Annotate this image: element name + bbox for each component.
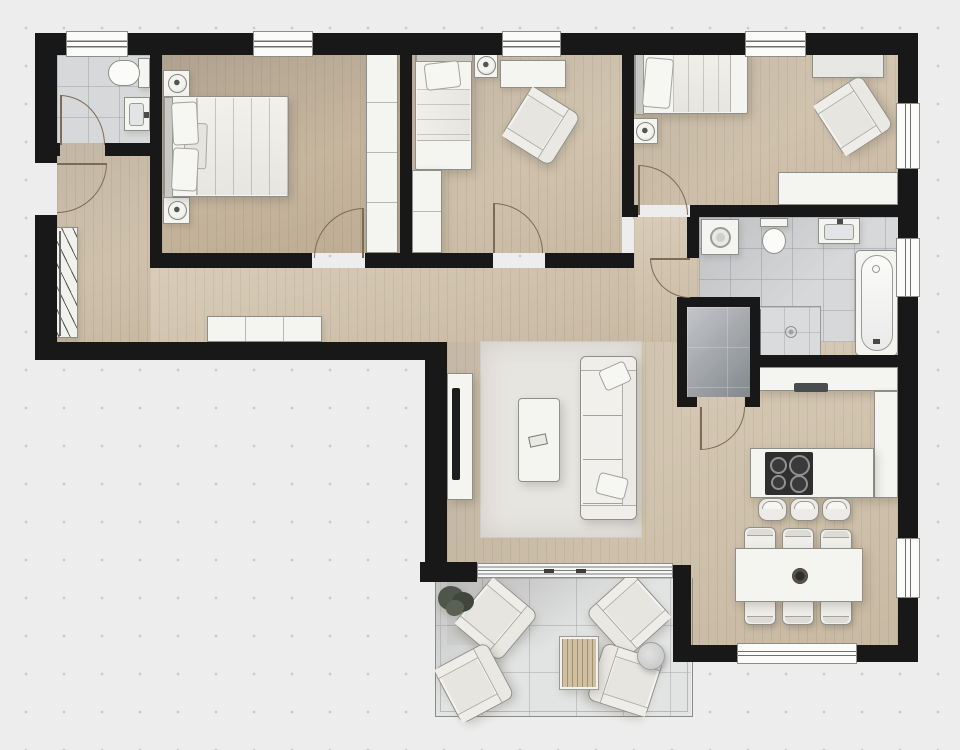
- wall-right-2: [898, 169, 918, 238]
- single-bed: [634, 50, 748, 114]
- wall-bath1-bottom-b: [105, 143, 162, 156]
- table-lamp: [168, 201, 187, 220]
- wall-corridor-a: [150, 253, 312, 268]
- window: [896, 538, 920, 598]
- wall-master-bed2: [400, 33, 412, 268]
- door-leaf: [493, 203, 495, 253]
- wall-bed2-bed3: [622, 33, 634, 217]
- wall-living-left: [425, 345, 447, 582]
- table-lamp: [636, 122, 655, 141]
- slatted-wood-table: [560, 637, 598, 689]
- washer-door-icon: [710, 227, 731, 248]
- bar-stool: [822, 498, 851, 521]
- duvet: [417, 89, 470, 141]
- pillow: [423, 60, 461, 91]
- wall-right-1: [898, 33, 918, 103]
- wardrobe: [412, 170, 442, 253]
- kitchen-counter-top-run: [757, 367, 898, 391]
- wall-storage-right: [750, 297, 760, 407]
- basin: [824, 224, 854, 240]
- toilet: [108, 60, 140, 86]
- desk-sideboard: [778, 172, 898, 205]
- coffee-table: [518, 398, 560, 482]
- rack-rail: [59, 231, 61, 336]
- tap-icon: [144, 112, 149, 118]
- window: [737, 643, 857, 664]
- sideboard: [500, 60, 566, 88]
- door-leaf: [650, 258, 690, 260]
- washbasin: [124, 97, 150, 131]
- floor-storage-closet: [687, 307, 750, 397]
- window: [896, 103, 920, 169]
- dining-table: [735, 548, 863, 602]
- shower: [758, 306, 821, 356]
- wall-bottom-2: [857, 645, 918, 662]
- burner-icon: [770, 457, 787, 474]
- kitchen-counter-right-run: [874, 391, 898, 498]
- wall-bed3-bottom-b: [690, 205, 898, 217]
- sofa-armrest: [581, 505, 636, 519]
- double-bed: [163, 96, 289, 197]
- wall-storage-top: [677, 297, 760, 307]
- sofa: [580, 356, 637, 520]
- window: [745, 31, 806, 57]
- bar-stool: [790, 498, 819, 521]
- cooktop: [765, 452, 813, 495]
- chair-back: [823, 531, 849, 538]
- sliding-glass-door: [477, 563, 673, 578]
- wall-left-lower: [35, 215, 57, 360]
- hall-sideboard: [207, 316, 322, 342]
- basin: [129, 103, 144, 126]
- wall-corridor-b: [365, 253, 493, 268]
- wall-bath2-bottom: [757, 355, 898, 367]
- kitchen-sink: [794, 383, 828, 392]
- toilet: [762, 228, 786, 254]
- round-side-table: [637, 642, 665, 670]
- chair-back: [785, 530, 811, 537]
- wall-storage-bottom-b: [745, 397, 760, 407]
- kitchen-island: [750, 448, 874, 498]
- window: [253, 31, 313, 57]
- door-handle: [544, 569, 554, 573]
- burner-icon: [789, 455, 810, 476]
- window: [502, 31, 561, 57]
- tap-icon: [873, 339, 880, 344]
- wall-terrace-side: [673, 565, 691, 662]
- pillow: [642, 57, 674, 109]
- bar-stool: [758, 498, 787, 521]
- pillow: [171, 147, 199, 191]
- duvet: [673, 52, 731, 112]
- drain-icon: [872, 265, 880, 273]
- washbasin: [818, 218, 860, 244]
- window: [896, 238, 920, 297]
- wall-bath2-left: [687, 217, 699, 258]
- table-lamp: [477, 56, 496, 75]
- remote-control: [528, 433, 548, 448]
- burner-icon: [771, 475, 786, 490]
- wall-bath1-bottom-a: [35, 143, 60, 156]
- chair-back: [747, 529, 773, 536]
- wall-right-3: [898, 297, 918, 538]
- duvet: [196, 98, 288, 195]
- tv-sideboard: [447, 373, 473, 500]
- chair-back: [785, 616, 811, 623]
- door-leaf: [362, 208, 364, 258]
- drain-icon: [785, 326, 797, 338]
- stool-back: [826, 501, 847, 509]
- door-handle: [576, 569, 586, 573]
- stool-back: [794, 501, 815, 509]
- door-leaf: [57, 163, 107, 165]
- tv: [452, 388, 460, 480]
- floor-plan-canvas: [0, 0, 960, 750]
- single-bed: [415, 52, 472, 170]
- table-lamp: [168, 74, 187, 93]
- stool-back: [762, 501, 783, 509]
- door-leaf: [700, 407, 702, 450]
- tap-icon: [837, 219, 843, 224]
- wall-bed3-bottom-a: [622, 205, 638, 217]
- washing-machine: [701, 219, 739, 255]
- wardrobe: [366, 52, 398, 253]
- wall-hallway-bottom: [35, 342, 447, 360]
- centerpiece-bowl: [792, 568, 808, 584]
- toilet-tank: [760, 218, 788, 227]
- wall-storage-left: [677, 297, 687, 407]
- window: [66, 31, 128, 57]
- door-leaf: [60, 95, 62, 145]
- wall-storage-bottom-a: [677, 397, 697, 407]
- chair-back: [823, 616, 849, 623]
- bathtub: [855, 250, 898, 356]
- pillow: [171, 101, 199, 145]
- wall-corridor-c: [545, 253, 634, 268]
- door-leaf: [638, 165, 640, 215]
- chair-back: [747, 616, 773, 623]
- burner-icon: [790, 475, 808, 493]
